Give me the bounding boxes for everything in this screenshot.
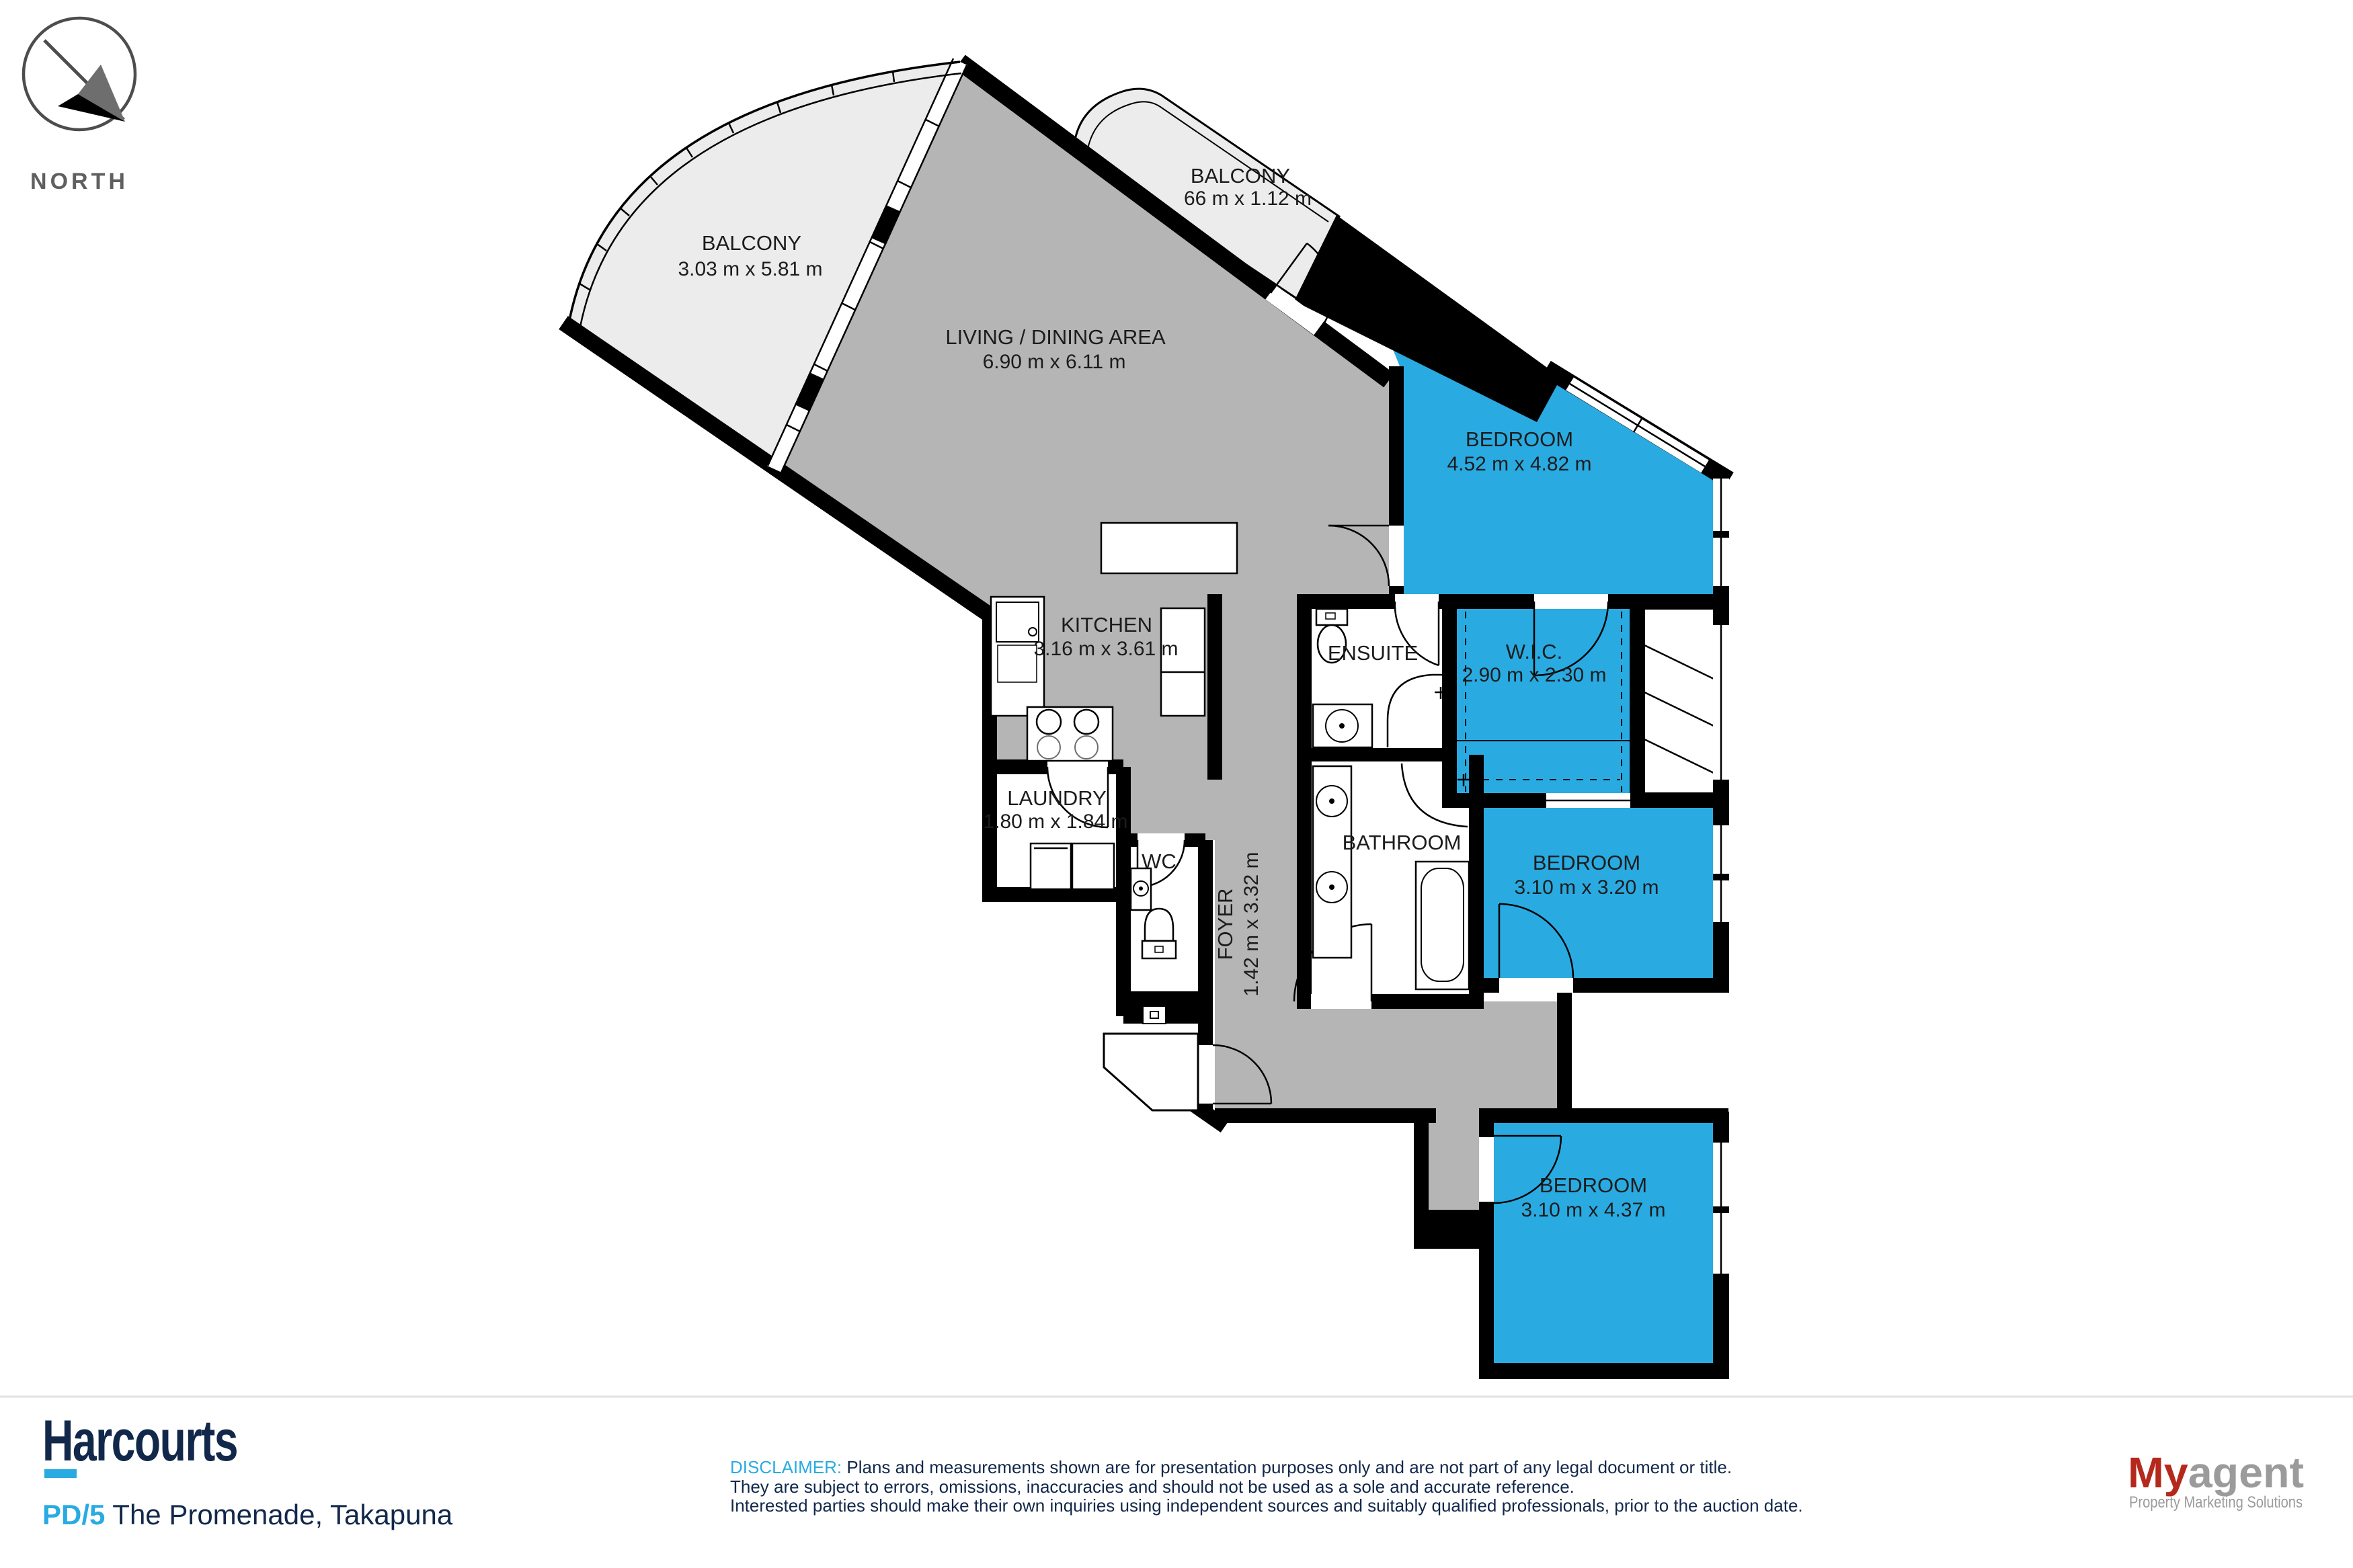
brand-underline-icon: [44, 1469, 77, 1478]
dims-wic: 2.90 m x 2.30 m: [1462, 664, 1606, 686]
drain-icon: [1329, 884, 1334, 890]
label-foyer: FOYER: [1213, 889, 1237, 960]
hall-strip: [1116, 759, 1222, 840]
dims-bedroom-2: 3.10 m x 3.20 m: [1514, 876, 1659, 899]
label-bedroom-2: BEDROOM: [1533, 851, 1640, 874]
void-shaft: [1644, 609, 1714, 793]
footer: Harcourts PD/5 The Promenade, Takapuna D…: [0, 1397, 2353, 1530]
listing-address-text: The Promenade, Takapuna: [105, 1499, 452, 1530]
dims-laundry: 1.80 m x 1.84 m: [983, 811, 1127, 833]
disclaimer-text-1: Plans and measurements shown are for pre…: [842, 1457, 1732, 1477]
listing-ref: PD/5: [42, 1499, 105, 1530]
wc-drain-icon: [1139, 886, 1143, 891]
disclaimer-line-1: DISCLAIMER: Plans and measurements shown…: [730, 1457, 1732, 1477]
label-wc: WC: [1142, 850, 1176, 873]
stove: [1027, 707, 1113, 761]
label-kitchen: KITCHEN: [1061, 613, 1152, 636]
agency-logo: Myagent: [2128, 1448, 2304, 1497]
label-living: LIVING / DINING AREA: [945, 325, 1166, 349]
dims-balcony-small: 66 m x 1.12 m: [1184, 188, 1312, 210]
label-balcony-small: BALCONY: [1191, 164, 1290, 188]
label-wic: W.I.C.: [1506, 640, 1562, 663]
drain-icon: [1339, 723, 1345, 729]
disclaimer-line-3: Interested parties should make their own…: [730, 1495, 1803, 1516]
kitchen-island: [1101, 523, 1237, 573]
disclaimer-label: DISCLAIMER:: [730, 1457, 842, 1477]
bathtub: [1416, 862, 1469, 989]
agency-logo-my: My: [2128, 1448, 2188, 1497]
kitchen-counter: [1161, 608, 1205, 716]
room-bedroom-3: [1494, 1123, 1714, 1371]
drain-icon: [1329, 798, 1334, 804]
label-bedroom-3: BEDROOM: [1540, 1173, 1647, 1197]
dims-bedroom-master: 4.52 m x 4.82 m: [1447, 453, 1591, 475]
washing-machine: [1031, 843, 1071, 889]
dims-foyer: 1.42 m x 3.32 m: [1240, 852, 1263, 996]
agency-tagline: Property Marketing Solutions: [2129, 1493, 2303, 1512]
toilet-tank-icon: [1316, 609, 1347, 625]
toilet-tank-icon: [1142, 941, 1176, 958]
entry-step: [1104, 1034, 1198, 1110]
hall-corridor: [1222, 1001, 1557, 1116]
listing-address: PD/5 The Promenade, Takapuna: [42, 1499, 453, 1530]
shower-glass: [1388, 675, 1442, 747]
floor-plan-canvas: NORTH: [0, 0, 2353, 1568]
dims-balcony-main: 3.03 m x 5.81 m: [678, 258, 822, 280]
brand-logo: Harcourts: [42, 1409, 237, 1473]
dims-bedroom-3: 3.10 m x 4.37 m: [1521, 1199, 1665, 1221]
dims-kitchen: 3.16 m x 3.61 m: [1033, 638, 1178, 660]
entry-panel-icon: [1143, 1006, 1166, 1024]
dims-living: 6.90 m x 6.11 m: [983, 351, 1126, 373]
hall-stub: [1429, 1112, 1479, 1216]
north-indicator: NORTH: [24, 18, 135, 194]
label-bathroom: BATHROOM: [1343, 831, 1462, 854]
toilet-bowl-icon: [1145, 909, 1173, 941]
label-laundry: LAUNDRY: [1007, 786, 1107, 810]
dryer: [1072, 843, 1114, 889]
label-ensuite: ENSUITE: [1328, 641, 1418, 665]
north-label: NORTH: [30, 169, 128, 194]
label-balcony-main: BALCONY: [702, 231, 801, 255]
wall: [1414, 1210, 1486, 1249]
label-bedroom-master: BEDROOM: [1466, 427, 1573, 451]
disclaimer-line-2: They are subject to errors, omissions, i…: [730, 1477, 1574, 1497]
floor-plan-page: NORTH: [0, 0, 2353, 1568]
agency-logo-agent: agent: [2188, 1448, 2304, 1497]
